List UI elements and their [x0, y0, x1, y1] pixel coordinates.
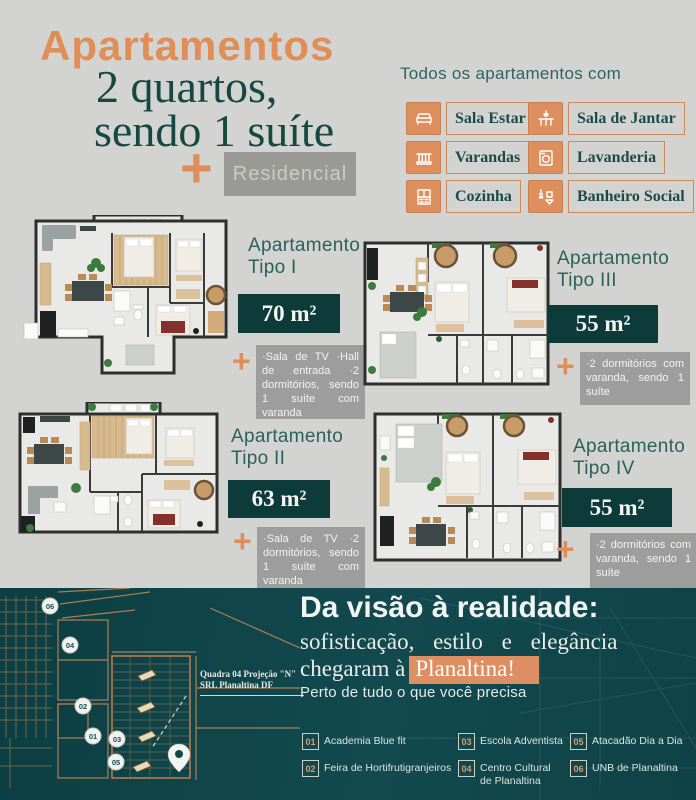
plus-icon: +	[180, 140, 213, 196]
map-marker: 02	[79, 702, 87, 711]
poi-item: 01 Academia Blue fit	[302, 733, 460, 750]
amenity-sala-jantar: Sala de Jantar	[528, 102, 685, 135]
footer-headline: Da visão à realidade:	[300, 591, 598, 625]
map-marker: 03	[113, 735, 121, 744]
poi-item: 03 Escola Adventista	[458, 733, 564, 750]
bathroom-icon	[528, 180, 563, 213]
poi-item: 04 Centro Cultural de Planaltina	[458, 760, 564, 787]
apartment-tipo-iii-label: Apartamento Tipo III	[557, 248, 669, 293]
amenity-label: Sala Estar	[446, 102, 535, 135]
sofa-icon	[406, 102, 441, 135]
amenities-row: Varandas Lavanderia	[406, 141, 690, 174]
kitchen-icon	[406, 180, 441, 213]
plus-icon: +	[556, 350, 575, 382]
poi-column-3: 05 Atacadão Dia a Dia 06 UNB de Planalti…	[570, 733, 692, 777]
floor-plan-tipo-iv	[372, 412, 564, 562]
poi-column-2: 03 Escola Adventista 04 Centro Cultural …	[458, 733, 564, 787]
washing-machine-icon	[528, 141, 563, 174]
flyer-page: Apartamentos 2 quartos, sendo 1 suíte + …	[0, 0, 696, 800]
amenity-sala-estar: Sala Estar	[406, 102, 528, 135]
amenity-label: Varandas	[446, 141, 529, 174]
subtitle-line2: sendo 1 suíte	[94, 104, 334, 157]
floor-plan-tipo-iii	[362, 240, 552, 388]
map-marker: 05	[112, 758, 120, 767]
amenities-heading: Todos os apartamentos com	[400, 64, 621, 84]
apartment-tipo-ii-label: Apartamento Tipo II	[231, 426, 343, 471]
apartment-tipo-i-label: Apartamento Tipo I	[248, 235, 360, 280]
poi-item: 06 UNB de Planaltina	[570, 760, 692, 777]
amenity-label: Sala de Jantar	[568, 102, 685, 135]
apartment-tipo-i-description: ·Sala de TV ·Hall de entrada ·2 dormitór…	[256, 345, 365, 419]
poi-number-badge: 05	[570, 733, 587, 750]
apartment-tipo-iv-label: Apartamento Tipo IV	[573, 436, 685, 481]
apartment-tipo-iv-area: 55 m²	[562, 488, 672, 527]
amenities-grid: Sala Estar Sala de Jantar Varandas La	[406, 102, 690, 213]
footer-line2: chegaram àPlanaltina!	[300, 656, 539, 684]
footer-tagline: Perto de tudo o que você precisa	[300, 684, 527, 701]
apartment-tipo-iii-area: 55 m²	[548, 305, 658, 343]
residencial-badge: Residencial	[224, 152, 356, 196]
amenities-row: Sala Estar Sala de Jantar	[406, 102, 690, 135]
plus-icon: +	[233, 525, 252, 557]
poi-number-badge: 02	[302, 760, 319, 777]
poi-number-badge: 04	[458, 760, 475, 777]
map-marker: 01	[89, 732, 97, 741]
amenity-label: Banheiro Social	[568, 180, 694, 213]
floor-plan-tipo-i	[8, 215, 234, 377]
map-marker: 06	[46, 602, 54, 611]
poi-item: 05 Atacadão Dia a Dia	[570, 733, 692, 750]
poi-column-1: 01 Academia Blue fit 02 Feira de Hortifr…	[302, 733, 460, 777]
amenity-cozinha: Cozinha	[406, 180, 528, 213]
amenities-row: Cozinha Banheiro Social	[406, 180, 690, 213]
apartment-tipo-i-area: 70 m²	[238, 294, 340, 333]
poi-item: 02 Feira de Hortifrutigranjeiros	[302, 760, 460, 777]
poi-number-badge: 01	[302, 733, 319, 750]
amenity-banheiro: Banheiro Social	[528, 180, 694, 213]
apartment-tipo-iv-description: ·2 dormitórios com varanda, sendo 1 suít…	[590, 533, 696, 590]
floor-plan-tipo-ii	[14, 402, 226, 534]
amenity-varandas: Varandas	[406, 141, 528, 174]
apartment-tipo-ii-area: 63 m²	[228, 480, 330, 518]
amenity-label: Cozinha	[446, 180, 521, 213]
amenity-label: Lavanderia	[568, 141, 665, 174]
amenity-lavanderia: Lavanderia	[528, 141, 665, 174]
apartment-tipo-iii-description: ·2 dormitórios com varanda, sendo 1 suít…	[580, 352, 690, 405]
footer-line1: sofisticação, estilo e elegância	[300, 629, 617, 655]
poi-number-badge: 03	[458, 733, 475, 750]
highlight-planaltina: Planaltina!	[409, 656, 539, 684]
footer-section: 06 04 02 01 03 05 Quadra 04 Projeção "N"…	[0, 588, 696, 800]
map-address-label: Quadra 04 Projeção "N" SRL Planaltina DF	[200, 669, 304, 696]
map-marker: 04	[66, 641, 75, 650]
plus-icon: +	[556, 533, 575, 565]
balcony-icon	[406, 141, 441, 174]
apartment-tipo-ii-description: ·Sala de TV ·2 dormitórios, sendo 1 suít…	[257, 527, 365, 590]
plus-icon: +	[232, 345, 251, 377]
dining-table-icon	[528, 102, 563, 135]
poi-number-badge: 06	[570, 760, 587, 777]
